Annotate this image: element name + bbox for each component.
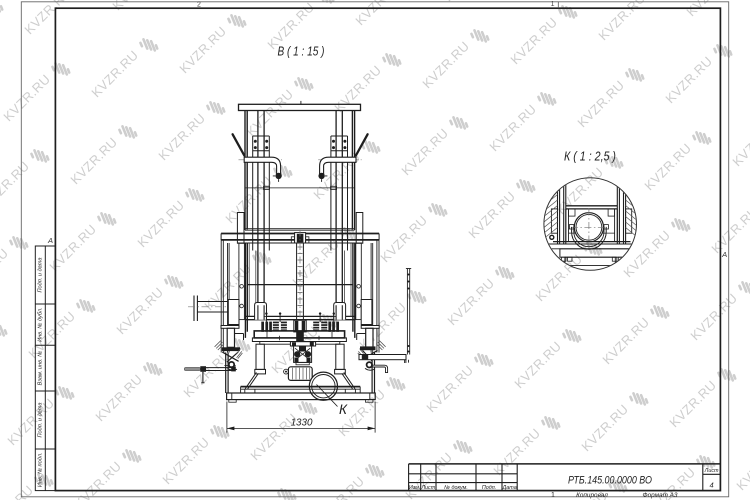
svg-text:К: К xyxy=(339,402,348,417)
svg-text:Инв. № подл.: Инв. № подл. xyxy=(38,452,44,487)
svg-text:1330: 1330 xyxy=(291,418,313,429)
svg-text:Взам. инв. №: Взам. инв. № xyxy=(38,351,44,386)
svg-text:Подп. и дата: Подп. и дата xyxy=(38,257,44,292)
svg-text:Лист: Лист xyxy=(704,468,719,474)
svg-text:Копировал: Копировал xyxy=(576,492,608,499)
svg-text:Изм.: Изм. xyxy=(409,485,421,491)
svg-text:Инв. № дубл.: Инв. № дубл. xyxy=(38,307,44,341)
svg-text:Формат А3: Формат А3 xyxy=(643,492,678,499)
svg-text:Подп.: Подп. xyxy=(482,485,496,491)
svg-text:Лист: Лист xyxy=(420,485,435,491)
svg-text:Подп. и дата: Подп. и дата xyxy=(38,402,44,437)
svg-text:2: 2 xyxy=(197,2,201,9)
svg-text:№ докум.: № докум. xyxy=(444,485,468,491)
svg-text:К ( 1 : 2,5 ): К ( 1 : 2,5 ) xyxy=(564,149,616,164)
svg-text:РТБ.145.00.0000 ВО: РТБ.145.00.0000 ВО xyxy=(568,474,652,486)
svg-text:Дата: Дата xyxy=(501,485,516,491)
svg-text:4: 4 xyxy=(710,481,714,490)
svg-text:1: 1 xyxy=(551,492,555,499)
svg-text:A: A xyxy=(721,250,727,259)
svg-text:В ( 1 : 15 ): В ( 1 : 15 ) xyxy=(278,44,325,59)
svg-text:1: 1 xyxy=(551,1,555,8)
svg-text:A: A xyxy=(47,236,53,245)
